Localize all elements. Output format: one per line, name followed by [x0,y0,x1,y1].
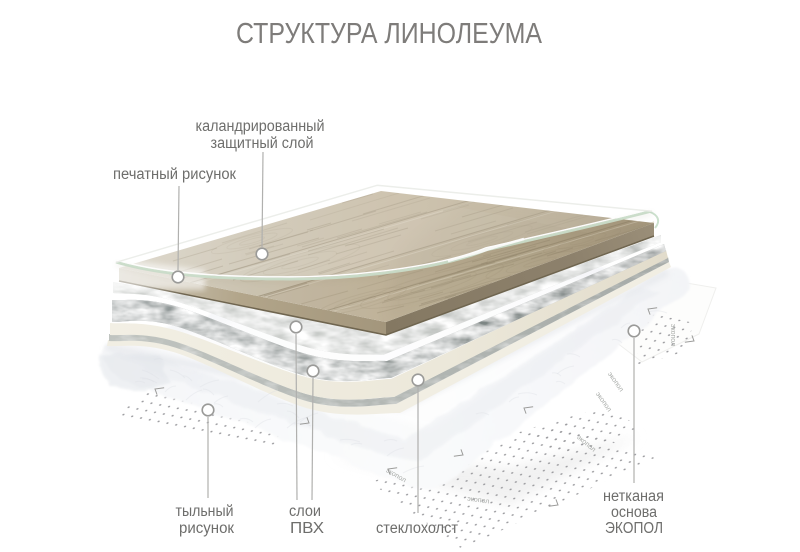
svg-text:рисунок: рисунок [179,520,234,537]
svg-text:ПВХ: ПВХ [290,520,325,537]
svg-text:тыльный: тыльный [176,503,234,520]
svg-text:нетканая: нетканая [603,488,664,505]
svg-text:каландрированный: каландрированный [196,118,325,135]
svg-text:СТРУКТУРА ЛИНОЛЕУМА: СТРУКТУРА ЛИНОЛЕУМА [236,18,542,50]
svg-text:печатный рисунок: печатный рисунок [113,166,236,183]
svg-text:защитный слой: защитный слой [211,135,314,152]
svg-text:слои: слои [289,503,321,520]
svg-text:экопол: экопол [669,324,676,346]
svg-text:ЭКОПОЛ: ЭКОПОЛ [605,520,663,537]
svg-text:основа: основа [611,504,657,521]
svg-text:стеклохолст: стеклохолст [376,520,458,537]
